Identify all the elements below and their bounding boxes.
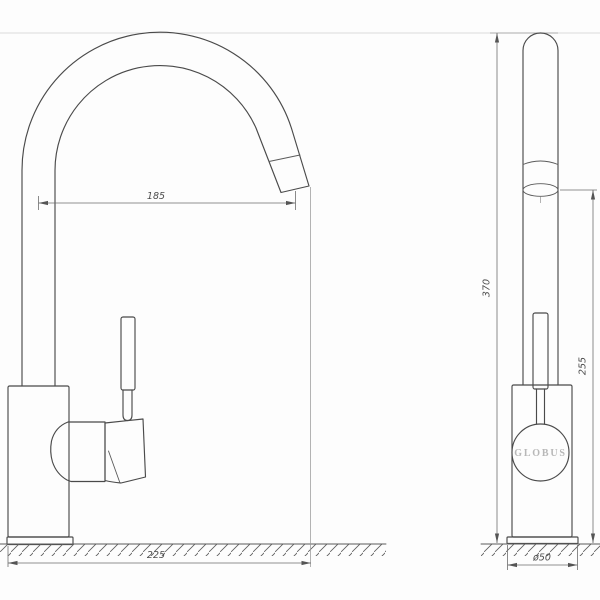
side-handle-grip [533,313,548,389]
side-view: GLOBUS [507,33,578,544]
front-view [7,32,309,544]
side-outlet-ellipse [523,184,558,197]
dim-outlet-height-label: 255 [578,357,589,375]
dimensions: 185 225 370 255 ø [8,33,597,570]
dim-overall-depth-label: 225 [147,550,165,561]
base-plate [7,537,73,545]
handle-plate [105,419,146,483]
side-handle-rod [537,389,545,426]
faucet-technical-drawing: GLOBUS 185 225 370 [0,0,600,600]
dim-overall-height: 370 [482,33,500,543]
side-tube-outline [523,33,558,385]
handle-rod [123,390,132,421]
handle-plate-crease [109,451,121,483]
body-outline [8,386,69,537]
handle-hub [51,422,105,482]
ground [0,544,600,556]
spout-aerator-band [269,155,300,162]
dim-overall-height-label: 370 [482,279,493,297]
brand-logo-text: GLOBUS [514,448,566,459]
drawing-canvas: GLOBUS 185 225 370 [0,0,600,600]
side-base-plate [507,537,578,544]
side-aerator-band [523,161,558,165]
ground-hatch-front [0,545,386,557]
spout-outline [22,32,309,386]
dim-base-diameter-label: ø50 [532,553,551,564]
dim-outlet-height: 255 [560,190,597,543]
dim-spout-reach-label: 185 [147,191,165,202]
dim-spout-reach: 185 [39,191,296,210]
handle-grip [121,317,135,390]
